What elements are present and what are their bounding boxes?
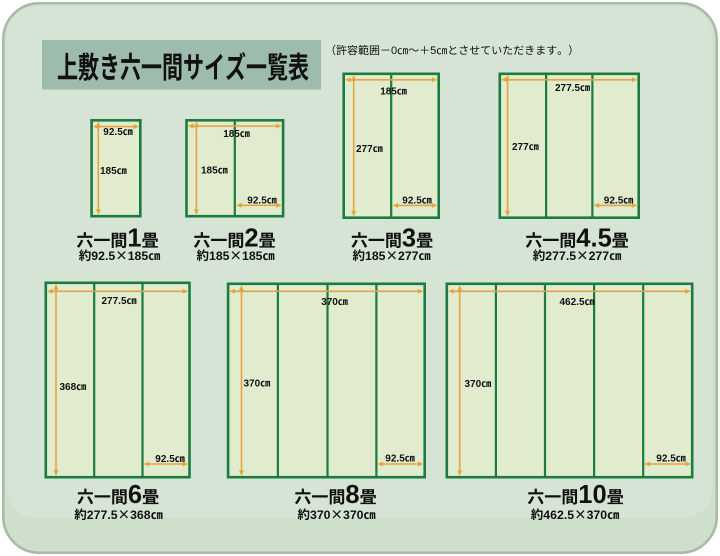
- svg-text:370: 370: [465, 379, 482, 390]
- svg-text:370: 370: [587, 508, 608, 522]
- svg-text:92.5: 92.5: [91, 249, 115, 263]
- svg-text:185: 185: [380, 87, 397, 98]
- svg-text:277: 277: [512, 142, 529, 153]
- svg-text:462.5: 462.5: [560, 297, 585, 308]
- svg-text:368: 368: [130, 508, 151, 522]
- svg-text:92.5: 92.5: [402, 196, 422, 207]
- svg-text:8: 8: [345, 481, 359, 509]
- svg-text:370: 370: [343, 508, 364, 522]
- svg-text:5: 5: [430, 45, 436, 57]
- svg-text:185: 185: [365, 249, 386, 263]
- svg-text:277: 277: [398, 249, 419, 263]
- svg-text:185: 185: [128, 249, 149, 263]
- svg-text:277: 277: [589, 249, 610, 263]
- svg-text:370: 370: [321, 297, 338, 308]
- svg-text:185: 185: [209, 249, 230, 263]
- svg-text:92.5: 92.5: [385, 454, 405, 465]
- svg-text:185: 185: [201, 166, 218, 177]
- svg-text:0: 0: [391, 45, 397, 57]
- svg-text:92.5: 92.5: [103, 127, 123, 138]
- svg-text:92.5: 92.5: [247, 196, 267, 207]
- svg-text:92.5: 92.5: [155, 454, 175, 465]
- svg-text:462.5: 462.5: [543, 508, 574, 522]
- svg-text:92.5: 92.5: [604, 196, 624, 207]
- svg-text:10: 10: [578, 481, 606, 509]
- svg-text:370: 370: [310, 508, 331, 522]
- svg-text:277.5: 277.5: [555, 83, 580, 94]
- svg-text:370: 370: [244, 379, 261, 390]
- svg-text:6: 6: [128, 481, 142, 509]
- svg-text:368: 368: [60, 382, 77, 393]
- svg-text:92.5: 92.5: [656, 454, 676, 465]
- svg-text:185: 185: [223, 129, 240, 140]
- svg-text:277.5: 277.5: [87, 508, 118, 522]
- svg-text:277: 277: [356, 144, 373, 155]
- svg-text:185: 185: [242, 249, 263, 263]
- svg-text:277.5: 277.5: [102, 296, 127, 307]
- svg-text:277.5: 277.5: [545, 249, 576, 263]
- svg-text:185: 185: [100, 166, 117, 177]
